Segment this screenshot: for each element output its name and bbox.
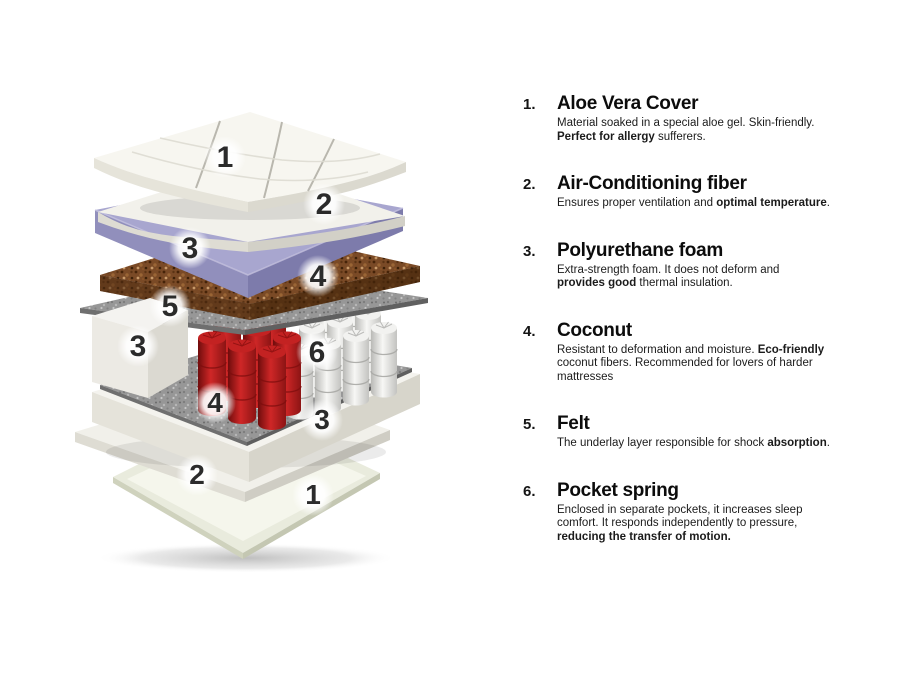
legend-item-number: 6. (523, 480, 557, 545)
label-lower-foam-3: 3 (301, 399, 343, 441)
label-springs-6: 6 (296, 331, 338, 373)
svg-text:6: 6 (309, 336, 326, 369)
description-bold-text: absorption (767, 437, 826, 449)
legend-item-title: Felt (557, 413, 830, 434)
legend-item-title: Coconut (557, 320, 824, 341)
legend-item-body: Polyurethane foam Extra-strength foam. I… (557, 240, 779, 291)
label-lower-felt-4: 4 (194, 382, 236, 424)
legend-item: 1. Aloe Vera Cover Material soaked in a … (523, 93, 863, 144)
legend-item-body: Air-Conditioning fiber Ensures proper ve… (557, 173, 830, 211)
svg-text:1: 1 (305, 479, 321, 510)
label-lower-fiber-2: 2 (176, 454, 218, 496)
legend-item-number: 5. (523, 413, 557, 451)
description-text: coconut fibers. Recommended for lovers o… (557, 357, 813, 369)
legend-item-number: 3. (523, 240, 557, 291)
svg-text:3: 3 (182, 232, 199, 265)
svg-text:5: 5 (162, 290, 179, 323)
legend-item-description: Extra-strength foam. It does not deform … (557, 264, 779, 291)
legend-item-number: 1. (523, 93, 557, 144)
label-coconut-4: 4 (297, 255, 339, 297)
legend-item-number: 4. (523, 320, 557, 385)
label-lower-cover-1: 1 (292, 474, 334, 516)
description-text: mattresses (557, 371, 613, 383)
svg-text:3: 3 (130, 330, 147, 363)
legend-item-body: Aloe Vera Cover Material soaked in a spe… (557, 93, 814, 144)
svg-text:4: 4 (207, 387, 223, 418)
legend-item: 4. Coconut Resistant to deformation and … (523, 320, 863, 385)
description-text: Material soaked in a special aloe gel. S… (557, 117, 814, 129)
description-text: . (827, 197, 830, 209)
legend-item-title: Air-Conditioning fiber (557, 173, 830, 194)
legend-item-body: Felt The underlay layer responsible for … (557, 413, 830, 451)
label-cover-1: 1 (204, 136, 246, 178)
label-fiber-2: 2 (303, 183, 345, 225)
legend-item-description: Material soaked in a special aloe gel. S… (557, 117, 814, 144)
legend-item: 3. Polyurethane foam Extra-strength foam… (523, 240, 863, 291)
mattress-diagram: 1 2 3 4 5 3 6 4 3 (50, 80, 450, 580)
legend-item-description: Resistant to deformation and moisture. E… (557, 344, 824, 385)
label-cube-3: 3 (117, 325, 159, 367)
legend-item-number: 2. (523, 173, 557, 211)
description-bold-text: optimal temperature (716, 197, 827, 209)
label-purple-3: 3 (169, 227, 211, 269)
legend-item-title: Polyurethane foam (557, 240, 779, 261)
description-text: . (827, 437, 830, 449)
mattress-infographic: 1 2 3 4 5 3 6 4 3 (0, 0, 900, 675)
description-text: Extra-strength foam. It does not deform … (557, 264, 779, 276)
legend-item-description: Ensures proper ventilation and optimal t… (557, 197, 830, 211)
description-text: sufferers. (655, 131, 706, 143)
label-felt-5: 5 (149, 285, 191, 327)
description-text: Ensures proper ventilation and (557, 197, 716, 209)
legend-item-title: Aloe Vera Cover (557, 93, 814, 114)
legend-panel: 1. Aloe Vera Cover Material soaked in a … (523, 93, 863, 573)
description-text: comfort. It responds independently to pr… (557, 517, 797, 529)
legend-item-body: Coconut Resistant to deformation and moi… (557, 320, 824, 385)
description-text: Resistant to deformation and moisture. (557, 344, 758, 356)
svg-text:3: 3 (314, 404, 330, 435)
description-bold-text: reducing the transfer of motion. (557, 531, 731, 543)
legend-item-title: Pocket spring (557, 480, 802, 501)
description-bold-text: provides good (557, 277, 636, 289)
legend-list: 1. Aloe Vera Cover Material soaked in a … (523, 93, 863, 544)
legend-item-description: The underlay layer responsible for shock… (557, 437, 830, 451)
legend-item-description: Enclosed in separate pockets, it increas… (557, 504, 802, 545)
description-text: thermal insulation. (636, 277, 733, 289)
svg-text:4: 4 (310, 260, 327, 293)
svg-text:2: 2 (189, 459, 205, 490)
svg-text:1: 1 (217, 141, 234, 174)
description-bold-text: Eco-friendly (758, 344, 824, 356)
svg-text:2: 2 (316, 188, 333, 221)
legend-item: 6. Pocket spring Enclosed in separate po… (523, 480, 863, 545)
description-text: The underlay layer responsible for shock (557, 437, 767, 449)
legend-item: 5. Felt The underlay layer responsible f… (523, 413, 863, 451)
description-bold-text: Perfect for allergy (557, 131, 655, 143)
legend-item: 2. Air-Conditioning fiber Ensures proper… (523, 173, 863, 211)
description-text: Enclosed in separate pockets, it increas… (557, 504, 802, 516)
legend-item-body: Pocket spring Enclosed in separate pocke… (557, 480, 802, 545)
